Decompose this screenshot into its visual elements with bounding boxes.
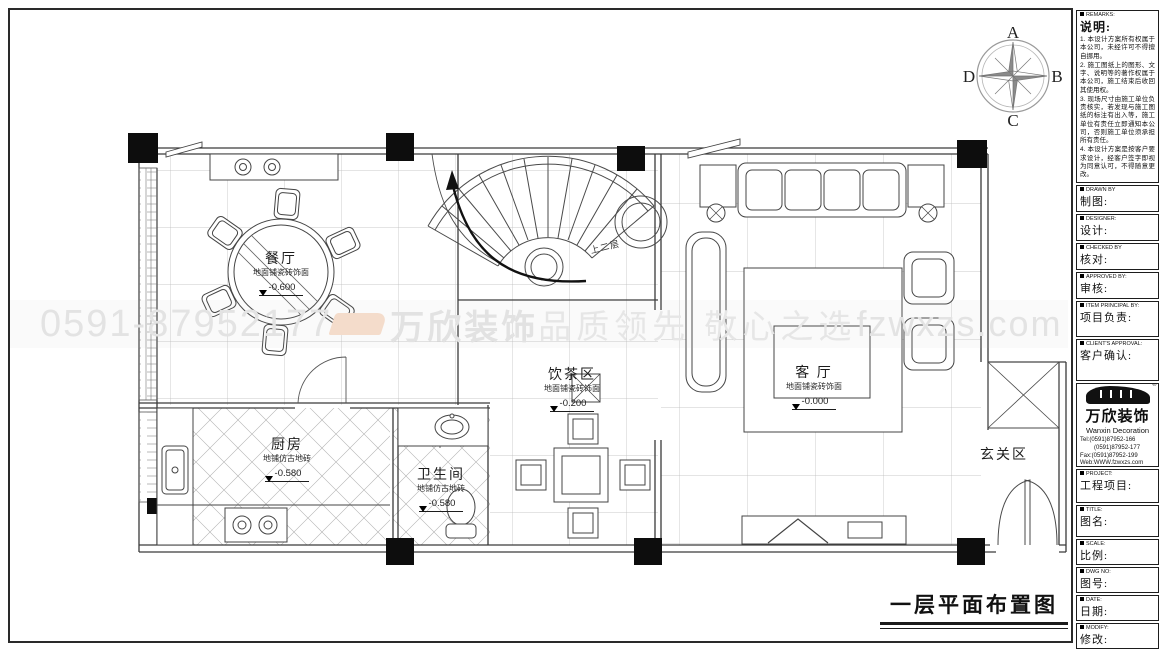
floorplan-sheet: A B C D 0591-87952177 万欣装饰 品质领先 敬心之选 fzw… <box>0 0 1170 653</box>
label-entry: 玄关区 <box>980 448 1028 464</box>
title-underline-thin <box>880 628 1068 629</box>
label-dining: 餐厅 地面铺瓷砖饰面 -0.600 <box>253 252 309 296</box>
company-tel2: (0591)87952-177 <box>1080 445 1155 453</box>
company-fax: Fax:(0591)87952-199 <box>1080 453 1155 461</box>
sink-faucet <box>172 467 178 473</box>
company-web: Web:WWW.fzwxzs.com <box>1080 460 1155 467</box>
remark-item: 2. 施工图纸上的图形、文字、说明等的著作权属于本公司，施工结束后收回其使用权。 <box>1080 62 1155 95</box>
brand-name-en: Wanxin Decoration <box>1080 426 1155 435</box>
company-logo-box: ® 万欣装饰 Wanxin Decoration Tel:(0591)87952… <box>1076 383 1159 467</box>
title-block: REMARKS: 说明: 1. 本设计方案所有权属于本公司，未经许可不得擅自挪用… <box>1071 8 1162 643</box>
brand-name: 万欣装饰 <box>1080 405 1155 426</box>
drawing-title: 一层平面布置图 <box>880 589 1068 629</box>
field-checked-by: CHECKED BY核对: <box>1076 243 1159 270</box>
remarks-box: REMARKS: 说明: 1. 本设计方案所有权属于本公司，未经许可不得擅自挪用… <box>1076 10 1159 183</box>
field-date: DATE:日期: <box>1076 595 1159 621</box>
compass: A B C D <box>963 23 1063 130</box>
field-approved-by: APPROVED BY:审核: <box>1076 272 1159 299</box>
brand-logo-icon: ® <box>1086 386 1150 404</box>
sideboard <box>210 154 338 180</box>
company-tel: Tel:(0591)87952-166 <box>1080 437 1155 445</box>
side-table <box>908 165 944 207</box>
field-scale: SCALE:比例: <box>1076 539 1159 565</box>
compass-e-label: B <box>1051 67 1062 86</box>
remark-item: 3. 现场尺寸由施工单位负责核实，若发现与施工图纸的标注有出入等，施工单位有责任… <box>1080 96 1155 146</box>
field-project: PROJECT:工程项目: <box>1076 469 1159 503</box>
field-item-principal: ITEM PRINCIPAL BY:项目负责: <box>1076 301 1159 337</box>
plan-area: A B C D <box>8 8 1071 643</box>
window-strips <box>139 168 157 502</box>
compass-n-label: A <box>1007 23 1020 42</box>
field-designer: DESIGNER:设计: <box>1076 214 1159 241</box>
compass-w-label: D <box>963 67 975 86</box>
side-table <box>700 165 736 207</box>
remark-item: 1. 本设计方案所有权属于本公司，未经许可不得擅自挪用。 <box>1080 36 1155 61</box>
field-client-approval: CLIENT'S APPROVAL:客户确认: <box>1076 339 1159 381</box>
label-kitchen: 厨房 地铺仿古地砖 -0.580 <box>263 438 311 482</box>
field-drawn-by: DRAWN BY制图: <box>1076 185 1159 212</box>
label-living: 客 厅 地面铺瓷砖饰面 -0.000 <box>786 366 842 410</box>
floor-plan-svg: A B C D <box>8 8 1071 643</box>
remark-item: 4. 本设计方案是按客户要求设计，经客户签字即视为同意认可，不得随意更改。 <box>1080 146 1155 179</box>
label-bath: 卫生间 地铺仿古地砖 -0.580 <box>417 468 465 512</box>
label-tea: 饮茶区 地面铺瓷砖饰面 -0.200 <box>544 368 600 412</box>
field-dwg-no: DWG NO:图号: <box>1076 567 1159 593</box>
title-underline-thick <box>880 622 1068 625</box>
field-modify: MODIFY:修改: <box>1076 623 1159 649</box>
compass-s-label: C <box>1007 111 1018 130</box>
field-title: TITLE:图名: <box>1076 505 1159 537</box>
